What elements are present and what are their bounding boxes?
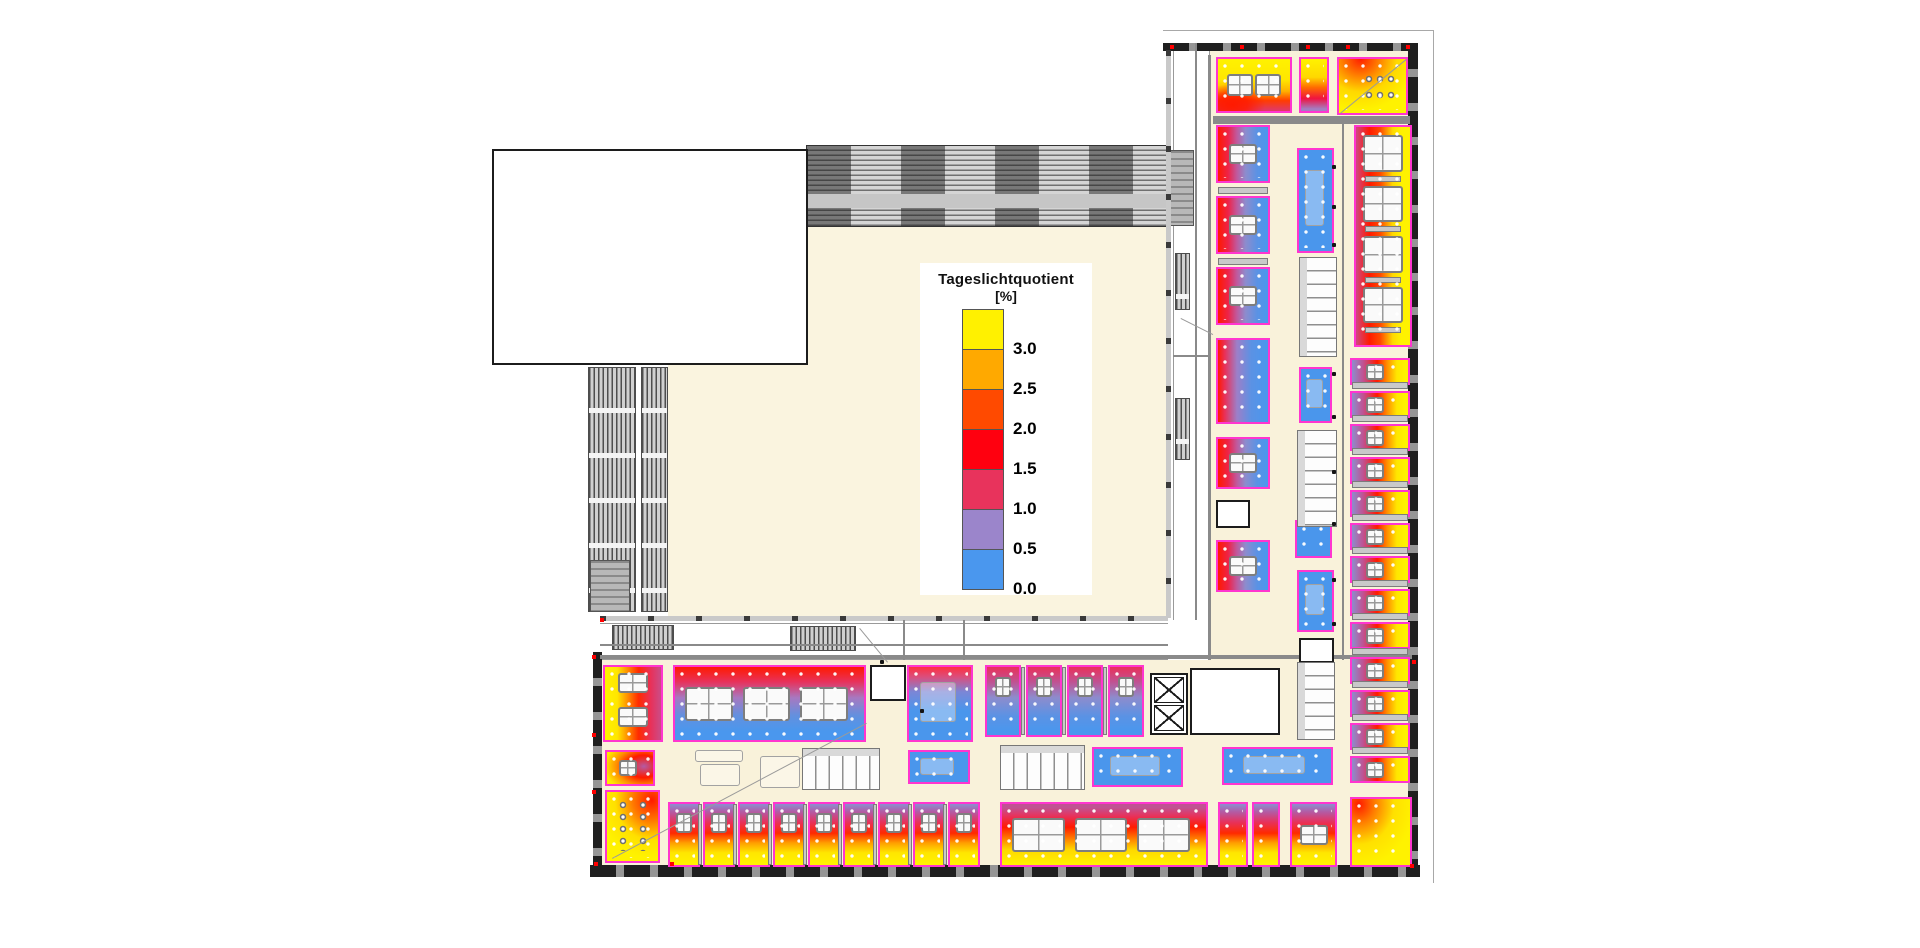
legend-entry-label: 2.5 (1013, 379, 1037, 399)
shelf-partition (1352, 648, 1408, 655)
office-room (808, 802, 840, 867)
survey-marker-red (600, 618, 604, 622)
desk-cluster-icon (956, 813, 972, 833)
desk-cluster-icon (1229, 144, 1257, 164)
desk-cluster-icon (1077, 677, 1093, 697)
desk-cluster-icon (921, 813, 937, 833)
legend-entry-label: 1.0 (1013, 499, 1037, 519)
office-room (1350, 756, 1410, 783)
office-room (1350, 424, 1410, 451)
office-room (1216, 540, 1270, 592)
survey-marker-red (1306, 45, 1310, 49)
inner-wall (1213, 116, 1410, 124)
office-room (1067, 665, 1103, 737)
column-marker (1332, 372, 1336, 376)
office-room (1350, 490, 1410, 517)
louver-strip (790, 626, 856, 651)
office-room (985, 665, 1021, 737)
wc-stalls (1297, 430, 1337, 527)
office-room (1000, 802, 1208, 867)
desk-cluster-icon (1366, 762, 1384, 778)
desk-cluster-icon (1229, 286, 1257, 306)
desk-cluster-icon (1366, 463, 1384, 479)
office-room (668, 802, 700, 867)
column-marker (880, 660, 884, 664)
office-room (1092, 747, 1183, 787)
facade-block (1168, 150, 1194, 226)
column-marker (1332, 470, 1336, 474)
desk-cluster-icon (1366, 430, 1384, 446)
office-room (1299, 57, 1329, 113)
legend-entry: 1.5 (962, 429, 1004, 469)
furniture-sketch (1306, 379, 1323, 408)
utility-room (1190, 668, 1280, 735)
desk-cluster-icon (886, 813, 902, 833)
office-room (673, 665, 866, 742)
office-room (1350, 391, 1410, 418)
office-room (1216, 338, 1270, 424)
desk-cluster-icon (816, 813, 832, 833)
shelf-partition (1103, 667, 1107, 735)
shelf-partition (1352, 382, 1408, 389)
desk-cluster-icon (1012, 818, 1065, 852)
outer-wall (1163, 43, 1418, 51)
office-room (908, 750, 970, 784)
desk-cluster-icon (1363, 236, 1403, 273)
shelf-partition (873, 804, 877, 865)
office-room (1297, 570, 1334, 632)
office-room (1252, 802, 1280, 867)
desk-cluster-icon (995, 677, 1011, 697)
inner-wall (1173, 355, 1210, 357)
wc-stalls (1000, 745, 1085, 790)
legend-entry-label: 3.0 (1013, 339, 1037, 359)
office-room (1216, 196, 1270, 254)
desk-cluster-icon (1363, 135, 1403, 172)
desk-cluster-icon (1300, 825, 1328, 845)
desk-cluster-icon (1366, 496, 1384, 512)
shelf-partition (1352, 580, 1408, 587)
wc-stalls (1297, 662, 1335, 740)
desk-cluster-icon (685, 687, 733, 721)
outer-wall (593, 652, 602, 867)
office-room (1350, 589, 1410, 616)
survey-marker-red (592, 790, 596, 794)
desk-cluster-icon (1363, 186, 1403, 223)
daylight-legend: Tageslichtquotient [%] 3.02.52.01.51.00.… (920, 263, 1092, 595)
office-room (738, 802, 770, 867)
desk-cluster-icon (1075, 818, 1128, 852)
survey-marker-red (1240, 45, 1244, 49)
office-room (605, 790, 660, 863)
office-room (1350, 457, 1410, 484)
chair-row-icon (618, 800, 628, 851)
office-room (1350, 556, 1410, 583)
office-room (948, 802, 980, 867)
desk-cluster-icon (1229, 453, 1257, 473)
furniture-sketch (1305, 170, 1324, 226)
chair-row-icon (1364, 90, 1398, 100)
survey-marker-red (592, 733, 596, 737)
inner-wall (963, 620, 965, 660)
survey-marker-red (1410, 864, 1414, 868)
louver-strip (641, 367, 668, 612)
survey-marker-red (1170, 45, 1174, 49)
shelf-partition (1062, 667, 1066, 735)
shelf-partition (943, 804, 947, 865)
courtyard-wall (600, 616, 1168, 621)
shelf-partition (908, 804, 912, 865)
louver-strip (1175, 253, 1190, 310)
office-room (1350, 690, 1410, 717)
inner-wall (600, 655, 1412, 659)
office-room (1026, 665, 1062, 737)
legend-entry: 2.5 (962, 349, 1004, 389)
elevator-x-icon (1154, 677, 1184, 703)
office-room (1216, 57, 1292, 113)
lounge-furniture-sketch (700, 764, 740, 786)
desk-cluster-icon (1227, 74, 1253, 96)
legend-color-scale: 3.02.52.01.51.00.50.0 (962, 309, 1004, 590)
column-marker (1332, 205, 1336, 209)
desk-cluster-icon (781, 813, 797, 833)
office-room (1108, 665, 1144, 737)
daylight-floorplan-canvas: Tageslichtquotient [%] 3.02.52.01.51.00.… (0, 0, 1920, 948)
office-room (878, 802, 910, 867)
office-room (1350, 723, 1410, 750)
lounge-furniture-sketch (695, 750, 743, 762)
desk-cluster-icon (1366, 595, 1384, 611)
office-room (1350, 523, 1410, 550)
desk-cluster-icon (1229, 215, 1257, 235)
office-room (1354, 125, 1412, 347)
inner-wall (1195, 43, 1197, 620)
desk-cluster-icon (746, 813, 762, 833)
survey-marker-red (594, 862, 598, 866)
desk-cluster-icon (1366, 729, 1384, 745)
desk-cluster-icon (618, 707, 648, 727)
desk-cluster-icon (619, 760, 637, 776)
survey-marker-red (1346, 45, 1350, 49)
desk-cluster-icon (1366, 529, 1384, 545)
shelf-partition (1021, 667, 1025, 735)
site-boundary-line (1163, 30, 1434, 31)
roof-louver-band (806, 145, 1170, 227)
column-marker (1332, 415, 1336, 419)
legend-entry-label: 0.0 (1013, 579, 1037, 599)
shelf-partition (1352, 747, 1408, 754)
legend-entry: 0.5 (962, 509, 1004, 549)
office-room (1222, 747, 1333, 785)
office-room (1216, 437, 1270, 489)
survey-marker-red (1406, 45, 1410, 49)
legend-entry-label: 2.0 (1013, 419, 1037, 439)
utility-room (870, 665, 906, 701)
column-marker (1332, 578, 1336, 582)
inner-wall (1342, 120, 1344, 660)
desk-cluster-icon (1366, 562, 1384, 578)
shelf-partition (803, 804, 807, 865)
office-room (907, 665, 973, 742)
wc-stalls (1299, 257, 1337, 357)
office-room (1218, 802, 1248, 867)
column-marker (1332, 522, 1336, 526)
survey-marker-red (1412, 660, 1416, 664)
desk-cluster-icon (743, 687, 791, 721)
desk-cluster-icon (1229, 556, 1257, 576)
column-marker (920, 709, 924, 713)
desk-cluster-icon (1365, 327, 1401, 333)
shelf-partition (1352, 481, 1408, 488)
desk-cluster-icon (1366, 364, 1384, 380)
louver-strip (612, 625, 674, 650)
desk-cluster-icon (1366, 628, 1384, 644)
desk-cluster-icon (1036, 677, 1052, 697)
furniture-sketch (920, 682, 956, 722)
furniture-sketch (1243, 756, 1305, 775)
shelf-partition (1352, 514, 1408, 521)
desk-cluster-icon (711, 813, 727, 833)
louver-strip (1175, 398, 1190, 460)
desk-cluster-icon (1366, 663, 1384, 679)
office-room (913, 802, 945, 867)
desk-cluster-icon (1365, 277, 1401, 283)
utility-room (1216, 500, 1250, 528)
shelf-partition (838, 804, 842, 865)
column-marker (1332, 622, 1336, 626)
office-room (1350, 657, 1410, 684)
furniture-sketch (1305, 584, 1324, 616)
utility-room (1299, 638, 1334, 663)
legend-entry-label: 0.5 (1013, 539, 1037, 559)
elevator-core (1150, 673, 1188, 735)
furniture-sketch (1110, 756, 1160, 776)
desk-cluster-icon (1366, 696, 1384, 712)
desk-cluster-icon (800, 687, 848, 721)
desk-cluster-icon (851, 813, 867, 833)
inner-wall (903, 620, 905, 660)
office-room (1350, 797, 1412, 867)
shelf-partition (1352, 681, 1408, 688)
courtyard-wall (1166, 50, 1171, 618)
legend-entry: 2.0 (962, 389, 1004, 429)
office-room (603, 665, 663, 742)
legend-entry: 3.0 (962, 309, 1004, 349)
shelf-partition (1218, 258, 1268, 265)
office-room (1216, 125, 1270, 183)
office-room (703, 802, 735, 867)
inner-wall (600, 644, 1168, 646)
inner-wall (1208, 55, 1211, 660)
shelf-partition (1218, 187, 1268, 194)
survey-marker-red (592, 655, 596, 659)
desk-cluster-icon (1255, 74, 1281, 96)
column-marker (1332, 243, 1336, 247)
column-marker (1332, 165, 1336, 169)
desk-cluster-icon (1137, 818, 1190, 852)
office-room (605, 750, 655, 786)
office-room (1350, 358, 1410, 385)
site-boundary-line (1433, 30, 1434, 883)
office-room (1290, 802, 1337, 867)
shelf-partition (1352, 714, 1408, 721)
shelf-partition (1352, 547, 1408, 554)
office-room (1299, 367, 1332, 423)
office-room (1350, 622, 1410, 649)
legend-unit: [%] (920, 288, 1092, 304)
shelf-partition (1352, 613, 1408, 620)
office-room (1297, 148, 1334, 253)
shelf-partition (733, 804, 737, 865)
legend-entry: 1.0 (962, 469, 1004, 509)
desk-cluster-icon (1363, 287, 1403, 324)
desk-cluster-icon (1366, 397, 1384, 413)
shelf-partition (1352, 448, 1408, 455)
desk-cluster-icon (1365, 176, 1401, 182)
masked-building-block (492, 149, 808, 365)
legend-entry: 0.0 (962, 549, 1004, 590)
furniture-sketch (920, 758, 954, 775)
office-room (1216, 267, 1270, 325)
facade-block (590, 560, 630, 612)
shelf-partition (768, 804, 772, 865)
legend-entry-label: 1.5 (1013, 459, 1037, 479)
desk-cluster-icon (1365, 226, 1401, 232)
shelf-partition (1352, 415, 1408, 422)
desk-cluster-icon (618, 673, 648, 693)
desk-cluster-icon (1118, 677, 1134, 697)
survey-marker-red (670, 862, 674, 866)
elevator-x-icon (1154, 705, 1184, 731)
legend-title: Tageslichtquotient (920, 263, 1092, 288)
office-room (773, 802, 805, 867)
office-room (843, 802, 875, 867)
wc-stalls (802, 748, 880, 790)
